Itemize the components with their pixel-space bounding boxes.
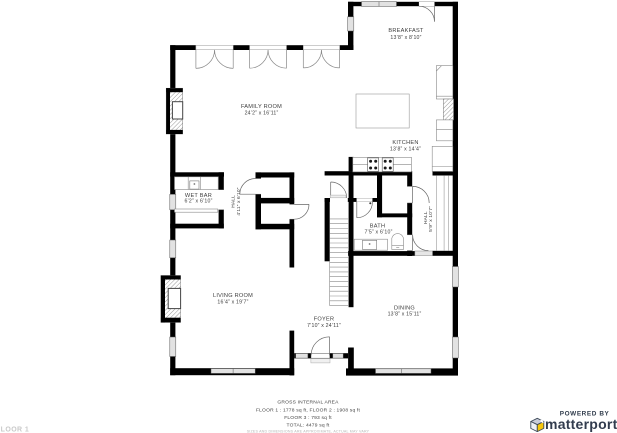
svg-text:16’4” x 19’7”: 16’4” x 19’7” <box>217 299 248 305</box>
svg-text:LIVING ROOM: LIVING ROOM <box>213 293 253 299</box>
svg-text:6’2” x 6’10”: 6’2” x 6’10” <box>184 198 212 204</box>
svg-text:HALL: HALL <box>231 195 237 208</box>
svg-text:FLOOR 1: FLOOR 1 <box>0 427 29 433</box>
svg-text:4’11” x 6’10”: 4’11” x 6’10” <box>236 187 242 215</box>
svg-text:SIZES AND DIMENSIONS ARE APPRO: SIZES AND DIMENSIONS ARE APPROXIMATE, AC… <box>247 430 370 433</box>
svg-text:FAMILY ROOM: FAMILY ROOM <box>241 104 282 110</box>
svg-text:7’10” x 24’11”: 7’10” x 24’11” <box>307 323 341 329</box>
svg-text:HALL: HALL <box>423 211 429 224</box>
svg-text:matterport™: matterport™ <box>545 416 617 432</box>
svg-text:FLOOR 1 : 1778 sq ft, FLOOR 2: FLOOR 1 : 1778 sq ft, FLOOR 2 : 1908 sq … <box>256 407 361 413</box>
svg-text:FOYER: FOYER <box>314 317 335 323</box>
svg-text:DINING: DINING <box>394 305 415 311</box>
svg-text:TOTAL: 4479 sq ft: TOTAL: 4479 sq ft <box>287 422 330 428</box>
svg-text:GROSS INTERNAL AREA: GROSS INTERNAL AREA <box>277 400 339 406</box>
svg-text:13’8” x 15’11”: 13’8” x 15’11” <box>388 312 422 318</box>
svg-text:24’2” x 16’11”: 24’2” x 16’11” <box>245 111 279 117</box>
svg-text:13’8” x 8’10”: 13’8” x 8’10” <box>390 35 421 41</box>
svg-text:FLOOR 3 : 793 sq ft: FLOOR 3 : 793 sq ft <box>284 415 332 421</box>
svg-text:KITCHEN: KITCHEN <box>392 140 418 146</box>
svg-text:BREAKFAST: BREAKFAST <box>388 28 424 34</box>
svg-text:13’8” x 14’4”: 13’8” x 14’4” <box>390 146 421 152</box>
svg-text:7’5” x 6’10”: 7’5” x 6’10” <box>364 229 392 235</box>
svg-text:BATH: BATH <box>370 223 386 229</box>
svg-text:5’9” x 10’7”: 5’9” x 10’7” <box>428 206 434 232</box>
